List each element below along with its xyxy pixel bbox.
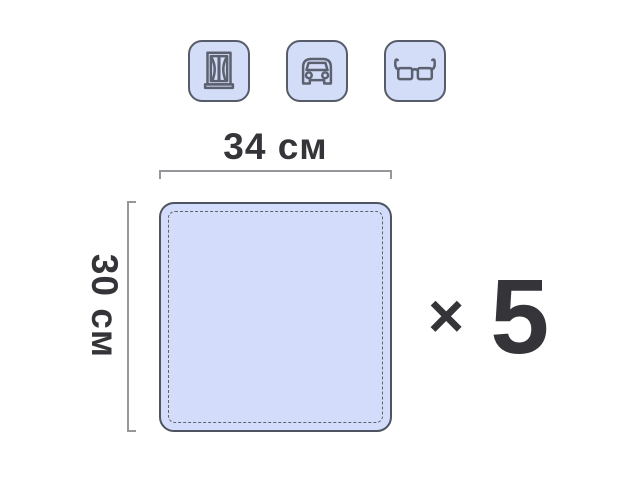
- glasses-icon: [392, 48, 438, 94]
- usage-tile-car: [286, 40, 348, 102]
- multiply-symbol: ×: [428, 286, 464, 348]
- height-measure-bracket: [127, 201, 136, 432]
- quantity-count: 5: [490, 264, 549, 370]
- quantity-group: × 5: [428, 255, 612, 379]
- width-measure-bracket: [159, 170, 392, 179]
- usage-tile-window: [188, 40, 250, 102]
- napkin-stitch-line: [168, 211, 383, 423]
- height-dimension-label: 30 см: [84, 246, 124, 366]
- product-infographic: 34 см 30 см × 5: [0, 0, 640, 480]
- car-icon: [294, 48, 340, 94]
- width-dimension-label: 34 см: [159, 126, 392, 168]
- napkin-illustration: [159, 202, 392, 432]
- usage-tile-glasses: [384, 40, 446, 102]
- window-icon: [196, 48, 242, 94]
